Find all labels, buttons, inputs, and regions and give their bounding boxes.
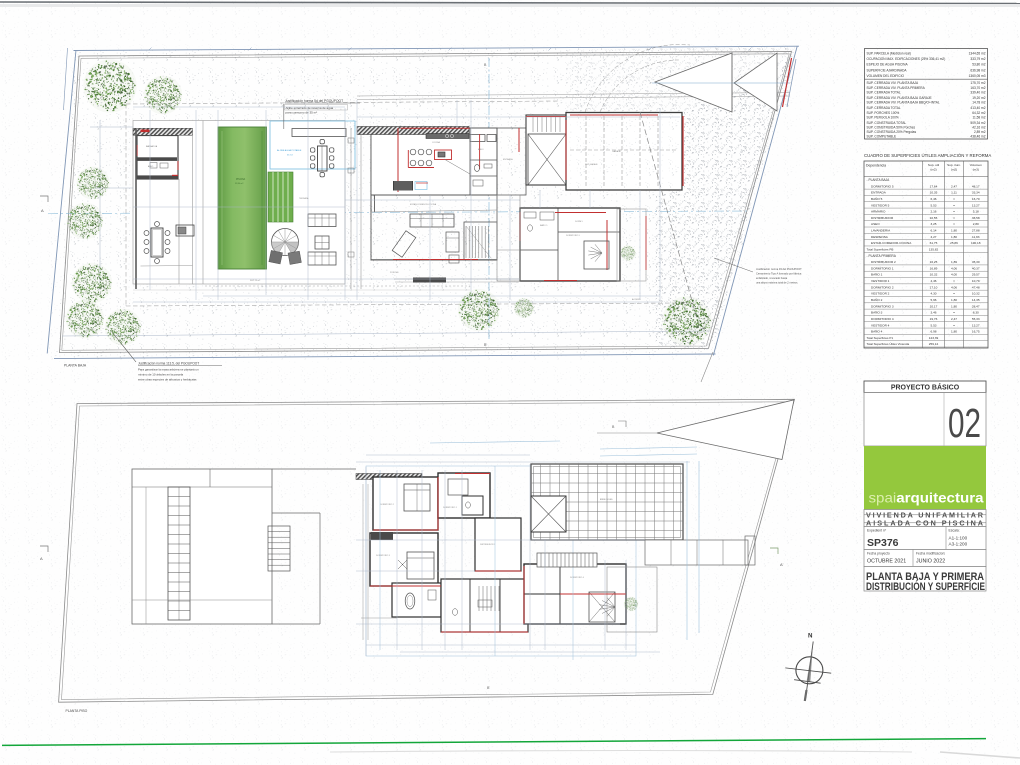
svg-text:COCINA: COCINA [432,141,440,144]
svg-text:35 m3: 35 m3 [287,155,293,157]
svg-text:LAVANDERIA: LAVANDERIA [871,229,891,233]
svg-text:53,80 m2: 53,80 m2 [235,183,244,185]
svg-text:SUP. CERRADA VIV. PLANTA BAJA: SUP. CERRADA VIV. PLANTA BAJA [867,81,920,85]
svg-text:48,17: 48,17 [972,184,980,188]
svg-text:SUP. PERGOLA 100%: SUP. PERGOLA 100% [867,116,899,120]
svg-text:25,86: 25,86 [950,241,958,245]
svg-text:10,55: 10,55 [930,216,938,220]
svg-text:ACCESO: ACCESO [632,298,641,301]
svg-text:ESTAR-COMEDOR-COCINA: ESTAR-COMEDOR-COCINA [410,203,437,206]
svg-text:Fecha proyecto: Fecha proyecto [867,552,890,556]
svg-text:13,27: 13,27 [972,203,980,207]
svg-text:ASEO: ASEO [148,165,154,168]
svg-text:SP376: SP376 [867,537,899,549]
svg-text:4,06: 4,06 [951,266,957,270]
svg-text:16,89: 16,89 [930,266,938,270]
svg-text:BAÑO 5: BAÑO 5 [540,224,548,227]
svg-text:entre otras especies de arbust: entre otras especies de arbustos y herbá… [138,378,197,382]
svg-text:16,75: 16,75 [972,330,980,334]
svg-text:ESTAR-COMEDOR-COCINA: ESTAR-COMEDOR-COCINA [871,241,912,245]
svg-text:CUADRO DE SUPERFICIES ÚTILES A: CUADRO DE SUPERFICIES ÚTILES AMPLIACIÓN … [864,153,991,158]
svg-text:SUP. CERRADA VIV. PLANTA BAJA: SUP. CERRADA VIV. PLANTA BAJA BBQ/O+INTA… [867,101,940,105]
svg-text:1,80: 1,80 [951,298,957,302]
svg-text:PLANTA PISO: PLANTA PISO [66,709,88,713]
svg-text:55,33: 55,33 [972,317,980,321]
svg-text:17,64: 17,64 [930,184,938,188]
svg-text:(m2): (m2) [951,168,957,172]
svg-text:02: 02 [948,400,981,446]
svg-text:SUP. CERRADA TOTAL: SUP. CERRADA TOTAL [867,91,901,95]
svg-text:BAÑO 1: BAÑO 1 [871,272,883,277]
svg-text:SUP. CONSTRUIDA 50% Porches: SUP. CONSTRUIDA 50% Porches [867,126,916,130]
svg-text:DORMITORIO 2: DORMITORIO 2 [871,285,894,289]
svg-text:para consumo de 35 m²: para consumo de 35 m² [286,111,318,115]
svg-text:SUP GARAJE: SUP GARAJE [585,163,598,166]
svg-text:SUP. PARCELA (Medicion real): SUP. PARCELA (Medicion real) [867,52,911,56]
svg-text:B': B' [484,343,487,347]
svg-text:4,00: 4,00 [951,273,957,277]
svg-text:47,48: 47,48 [972,285,980,289]
svg-text:SUP. PORCHES 100%: SUP. PORCHES 100% [867,111,900,115]
svg-text:Volumen: Volumen [970,163,982,167]
svg-text:10,17: 10,17 [930,304,938,308]
svg-text:6,46: 6,46 [930,197,936,201]
svg-text:SUP. COMPUTABLE: SUP. COMPUTABLE [867,134,897,138]
svg-text:BAÑO 4: BAÑO 4 [871,329,883,334]
svg-text:190,18: 190,18 [971,241,981,245]
svg-text:- PLANTA PRIMERA: - PLANTA PRIMERA [867,254,897,258]
svg-text:29,57: 29,57 [972,273,980,277]
svg-text:Total Superficies PB: Total Superficies PB [867,247,894,251]
svg-text:VESTIDOR 1: VESTIDOR 1 [871,279,890,283]
svg-text:36,58: 36,58 [972,216,980,220]
svg-text:5,53: 5,53 [930,203,936,207]
svg-text:=: = [953,292,955,296]
svg-text:Para garantizar la masa arbóre: Para garantizar la masa arbórea se plant… [138,368,199,372]
svg-text:N: N [808,633,813,640]
svg-text:A1-1:100: A1-1:100 [949,536,968,541]
svg-text:Total Superficies P1: Total Superficies P1 [867,336,894,340]
svg-text:13,27: 13,27 [972,323,980,327]
svg-text:6,98: 6,98 [930,330,936,334]
svg-text:413,40 m2: 413,40 m2 [970,106,985,110]
svg-text:A: A [40,556,43,561]
svg-text:DORMITORIO 2: DORMITORIO 2 [380,504,394,506]
svg-text:14,78 m2: 14,78 m2 [972,101,986,105]
svg-text:Justificación norma 113.5, del: Justificación norma 113.5, del PGOUPOOT [138,362,199,366]
svg-text:DORM 5: DORM 5 [575,221,584,223]
svg-text:339,40 m2: 339,40 m2 [970,91,985,95]
svg-text:=: = [953,203,955,207]
svg-text:4,46: 4,46 [930,279,936,283]
svg-text:VESTIDOR 2: VESTIDOR 2 [871,292,890,296]
svg-text:=: = [953,323,955,327]
svg-text:SUP. CONSTRUIDA TOTAL: SUP. CONSTRUIDA TOTAL [867,121,907,125]
svg-text:3,25: 3,25 [930,222,936,226]
svg-text:PLANTA BAJA: PLANTA BAJA [64,364,87,368]
svg-text:ALJIBE AGUA POTABLE: ALJIBE AGUA POTABLE [277,149,302,152]
svg-text:40,37: 40,37 [972,266,980,270]
svg-text:VESTIDOR 5: VESTIDOR 5 [871,203,890,207]
svg-text:27,88: 27,88 [972,229,980,233]
svg-text:una altura máxima total de 2 m: una altura máxima total de 2 metros. [756,281,798,285]
svg-text:Expedient nº: Expedient nº [867,529,887,533]
svg-text:A: A [41,208,44,213]
svg-text:64,32 m2: 64,32 m2 [972,111,986,115]
svg-text:42,16 m2: 42,16 m2 [972,126,986,130]
svg-text:11,58 m2: 11,58 m2 [972,116,985,120]
svg-text:DISTRIBUIDOR 2: DISTRIBUIDOR 2 [480,544,495,546]
svg-text:1,80: 1,80 [951,330,957,334]
svg-text:(m3): (m3) [973,168,979,172]
svg-text:123,39: 123,39 [929,336,939,340]
svg-text:1344,65 m2: 1344,65 m2 [969,52,986,56]
svg-text:=: = [953,210,955,214]
svg-text:Justificación norma 03 del PGO: Justificación norma 03 del PGOUPOOT [756,267,802,271]
svg-text:SUP. CERRADA TOTAL: SUP. CERRADA TOTAL [867,106,901,110]
svg-text:10,35: 10,35 [930,191,938,195]
svg-text:DISTRIBUCIÓN Y SUPERFÍCIE: DISTRIBUCIÓN Y SUPERFÍCIE [866,580,985,593]
svg-text:- PLANTA BAJA: - PLANTA BAJA [867,178,891,182]
svg-text:ASEO: ASEO [871,222,880,226]
svg-text:JUNIO 2022: JUNIO 2022 [916,559,945,565]
svg-text:175,70 m2: 175,70 m2 [970,81,985,85]
svg-text:DORMITORIO 3: DORMITORIO 3 [376,555,390,557]
svg-text:Escala:: Escala: [949,529,960,533]
svg-text:19,20 m2: 19,20 m2 [972,96,986,100]
svg-text:259,12: 259,12 [929,342,939,346]
svg-text:Justificación norma 5d del PGO: Justificación norma 5d del PGOUPOOT [285,99,343,103]
svg-text:Sup. util: Sup. util [928,163,939,167]
svg-text:=: = [953,197,955,201]
svg-text:SUP. CERRADA VIV. PLANTA BAJA: SUP. CERRADA VIV. PLANTA BAJA GARAJE [867,96,932,100]
svg-text:333,79 m2: 333,79 m2 [970,57,985,61]
svg-text:enfatizado, revocado hasta: enfatizado, revocado hasta [756,276,788,280]
svg-text:ESPEJO DE AGUA PISCINA: ESPEJO DE AGUA PISCINA [867,63,909,67]
svg-text:PORCHE: PORCHE [390,272,399,274]
svg-text:DORMITORIO 3: DORMITORIO 3 [871,304,894,308]
svg-text:Fecha modificacion:: Fecha modificacion: [916,552,945,556]
svg-text:Dependencia: Dependencia [866,164,886,168]
svg-text:OCTUBRE 2021: OCTUBRE 2021 [867,559,906,565]
svg-text:DORMITORIO 1: DORMITORIO 1 [871,266,894,270]
svg-text:ENTRADA: ENTRADA [871,191,887,195]
svg-text:509,34 m2: 509,34 m2 [970,121,985,125]
svg-text:mínimo de 10 árboles en la par: mínimo de 10 árboles en la parcela [138,373,184,377]
svg-text:636,98 m2: 636,98 m2 [970,68,985,72]
svg-text:=: = [953,216,955,220]
svg-text:17,10: 17,10 [930,285,938,289]
svg-text:4,27: 4,27 [930,235,936,239]
svg-text:Aljibe enterrado de reserva de: Aljibe enterrado de reserva de agua [286,106,334,110]
svg-text:10,32: 10,32 [930,273,938,277]
svg-text:DORMITORIO 4: DORMITORIO 4 [570,577,584,579]
svg-text:=: = [953,311,955,315]
svg-text:OCUPACION MAX. EDIFICACIONES (: OCUPACION MAX. EDIFICACIONES (25% 336,41… [867,57,946,61]
svg-text:GARAJE: GARAJE [612,150,621,153]
svg-text:ENTRADA: ENTRADA [503,158,513,161]
svg-text:5,96: 5,96 [930,298,936,302]
svg-text:5,18: 5,18 [973,210,979,214]
svg-text:10,79: 10,79 [972,279,980,283]
svg-text:438,46 m2: 438,46 m2 [970,134,985,138]
svg-text:19,76: 19,76 [930,317,938,321]
svg-text:TERRAZA: TERRAZA [299,197,309,200]
svg-text:DISTRIBUIDOR: DISTRIBUIDOR [871,216,894,220]
svg-text:1,89: 1,89 [951,260,957,264]
svg-text:1,80: 1,80 [951,304,957,308]
svg-text:DESPENSA: DESPENSA [871,235,889,239]
svg-text:BAÑO 3: BAÑO 3 [871,310,883,315]
svg-text:(m2): (m2) [930,168,936,172]
svg-text:=: = [953,279,955,283]
svg-text:28,47: 28,47 [972,304,980,308]
svg-text:SUP. CERRADA VIV. PLANTA PRIME: SUP. CERRADA VIV. PLANTA PRIMERA [867,86,926,90]
svg-text:33,34: 33,34 [972,191,980,195]
svg-text:PISCINA: PISCINA [236,178,246,181]
svg-text:A3-1:200: A3-1:200 [949,542,968,547]
svg-text:10,32: 10,32 [972,292,980,296]
svg-text:Sup. ilum.: Sup. ilum. [947,163,961,167]
svg-text:4,06: 4,06 [951,285,957,289]
svg-text:ASEO: ASEO [478,148,484,151]
svg-text:BRISE SOLEIL: BRISE SOLEIL [600,499,613,501]
svg-text:PROYECTO BÁSICO: PROYECTO BÁSICO [891,383,960,392]
svg-text:Cerramiento Tipo A formado po: Cerramiento Tipo A formado por fábrica [756,272,802,276]
svg-text:2,47: 2,47 [951,184,957,188]
svg-text:1,11: 1,11 [951,191,957,195]
svg-text:DISTRIBUIDOR 2: DISTRIBUIDOR 2 [871,260,896,264]
svg-text:BARBACOA: BARBACOA [146,145,158,148]
svg-text:16,70: 16,70 [972,197,980,201]
svg-text:135,82: 135,82 [929,247,939,251]
svg-text:2,47: 2,47 [951,317,957,321]
svg-text:DORMITORIO 4: DORMITORIO 4 [871,317,894,321]
svg-text:DORMITORIO 5: DORMITORIO 5 [566,235,580,237]
svg-text:ARMARIO: ARMARIO [871,210,886,214]
svg-text:1,80: 1,80 [951,235,957,239]
svg-text:VOLUMEN DEL EDIFICIO: VOLUMEN DEL EDIFICIO [867,74,905,78]
svg-text:1360,05 m3: 1360,05 m3 [969,74,986,78]
svg-text:SUP 28 m2: SUP 28 m2 [250,280,261,282]
svg-text:VESTIDOR 4: VESTIDOR 4 [871,323,890,327]
svg-text:2,80: 2,80 [973,222,979,226]
svg-text:2,16: 2,16 [930,210,936,214]
svg-text:DORMITORIO 5: DORMITORIO 5 [871,184,894,188]
svg-text:=: = [953,222,955,226]
svg-text:A': A' [780,562,784,567]
svg-text:1,80: 1,80 [951,229,957,233]
svg-text:6,14: 6,14 [930,229,936,233]
svg-text:16,25: 16,25 [930,260,938,264]
svg-text:8,30: 8,30 [973,311,979,315]
svg-text:BAÑO 5: BAÑO 5 [871,196,883,201]
svg-text:14,35: 14,35 [972,298,980,302]
svg-text:61,75: 61,75 [930,241,938,245]
svg-text:3,46: 3,46 [930,311,936,315]
svg-text:45,30: 45,30 [972,260,980,264]
svg-text:5,53: 5,53 [930,323,936,327]
svg-text:spaiarquitectura: spaiarquitectura [869,490,984,506]
svg-text:11,93: 11,93 [972,235,980,239]
svg-text:B': B' [487,686,490,690]
svg-text:53,80 m2: 53,80 m2 [972,63,986,67]
svg-text:BAÑO 2: BAÑO 2 [871,297,883,302]
svg-text:163,70 m2: 163,70 m2 [970,86,985,90]
svg-text:Total Superficies Útiles Vivie: Total Superficies Útiles Vivienda [867,341,910,346]
svg-text:SUPERFICIE AJARDINADA: SUPERFICIE AJARDINADA [867,68,908,72]
svg-text:4,30: 4,30 [930,292,936,296]
